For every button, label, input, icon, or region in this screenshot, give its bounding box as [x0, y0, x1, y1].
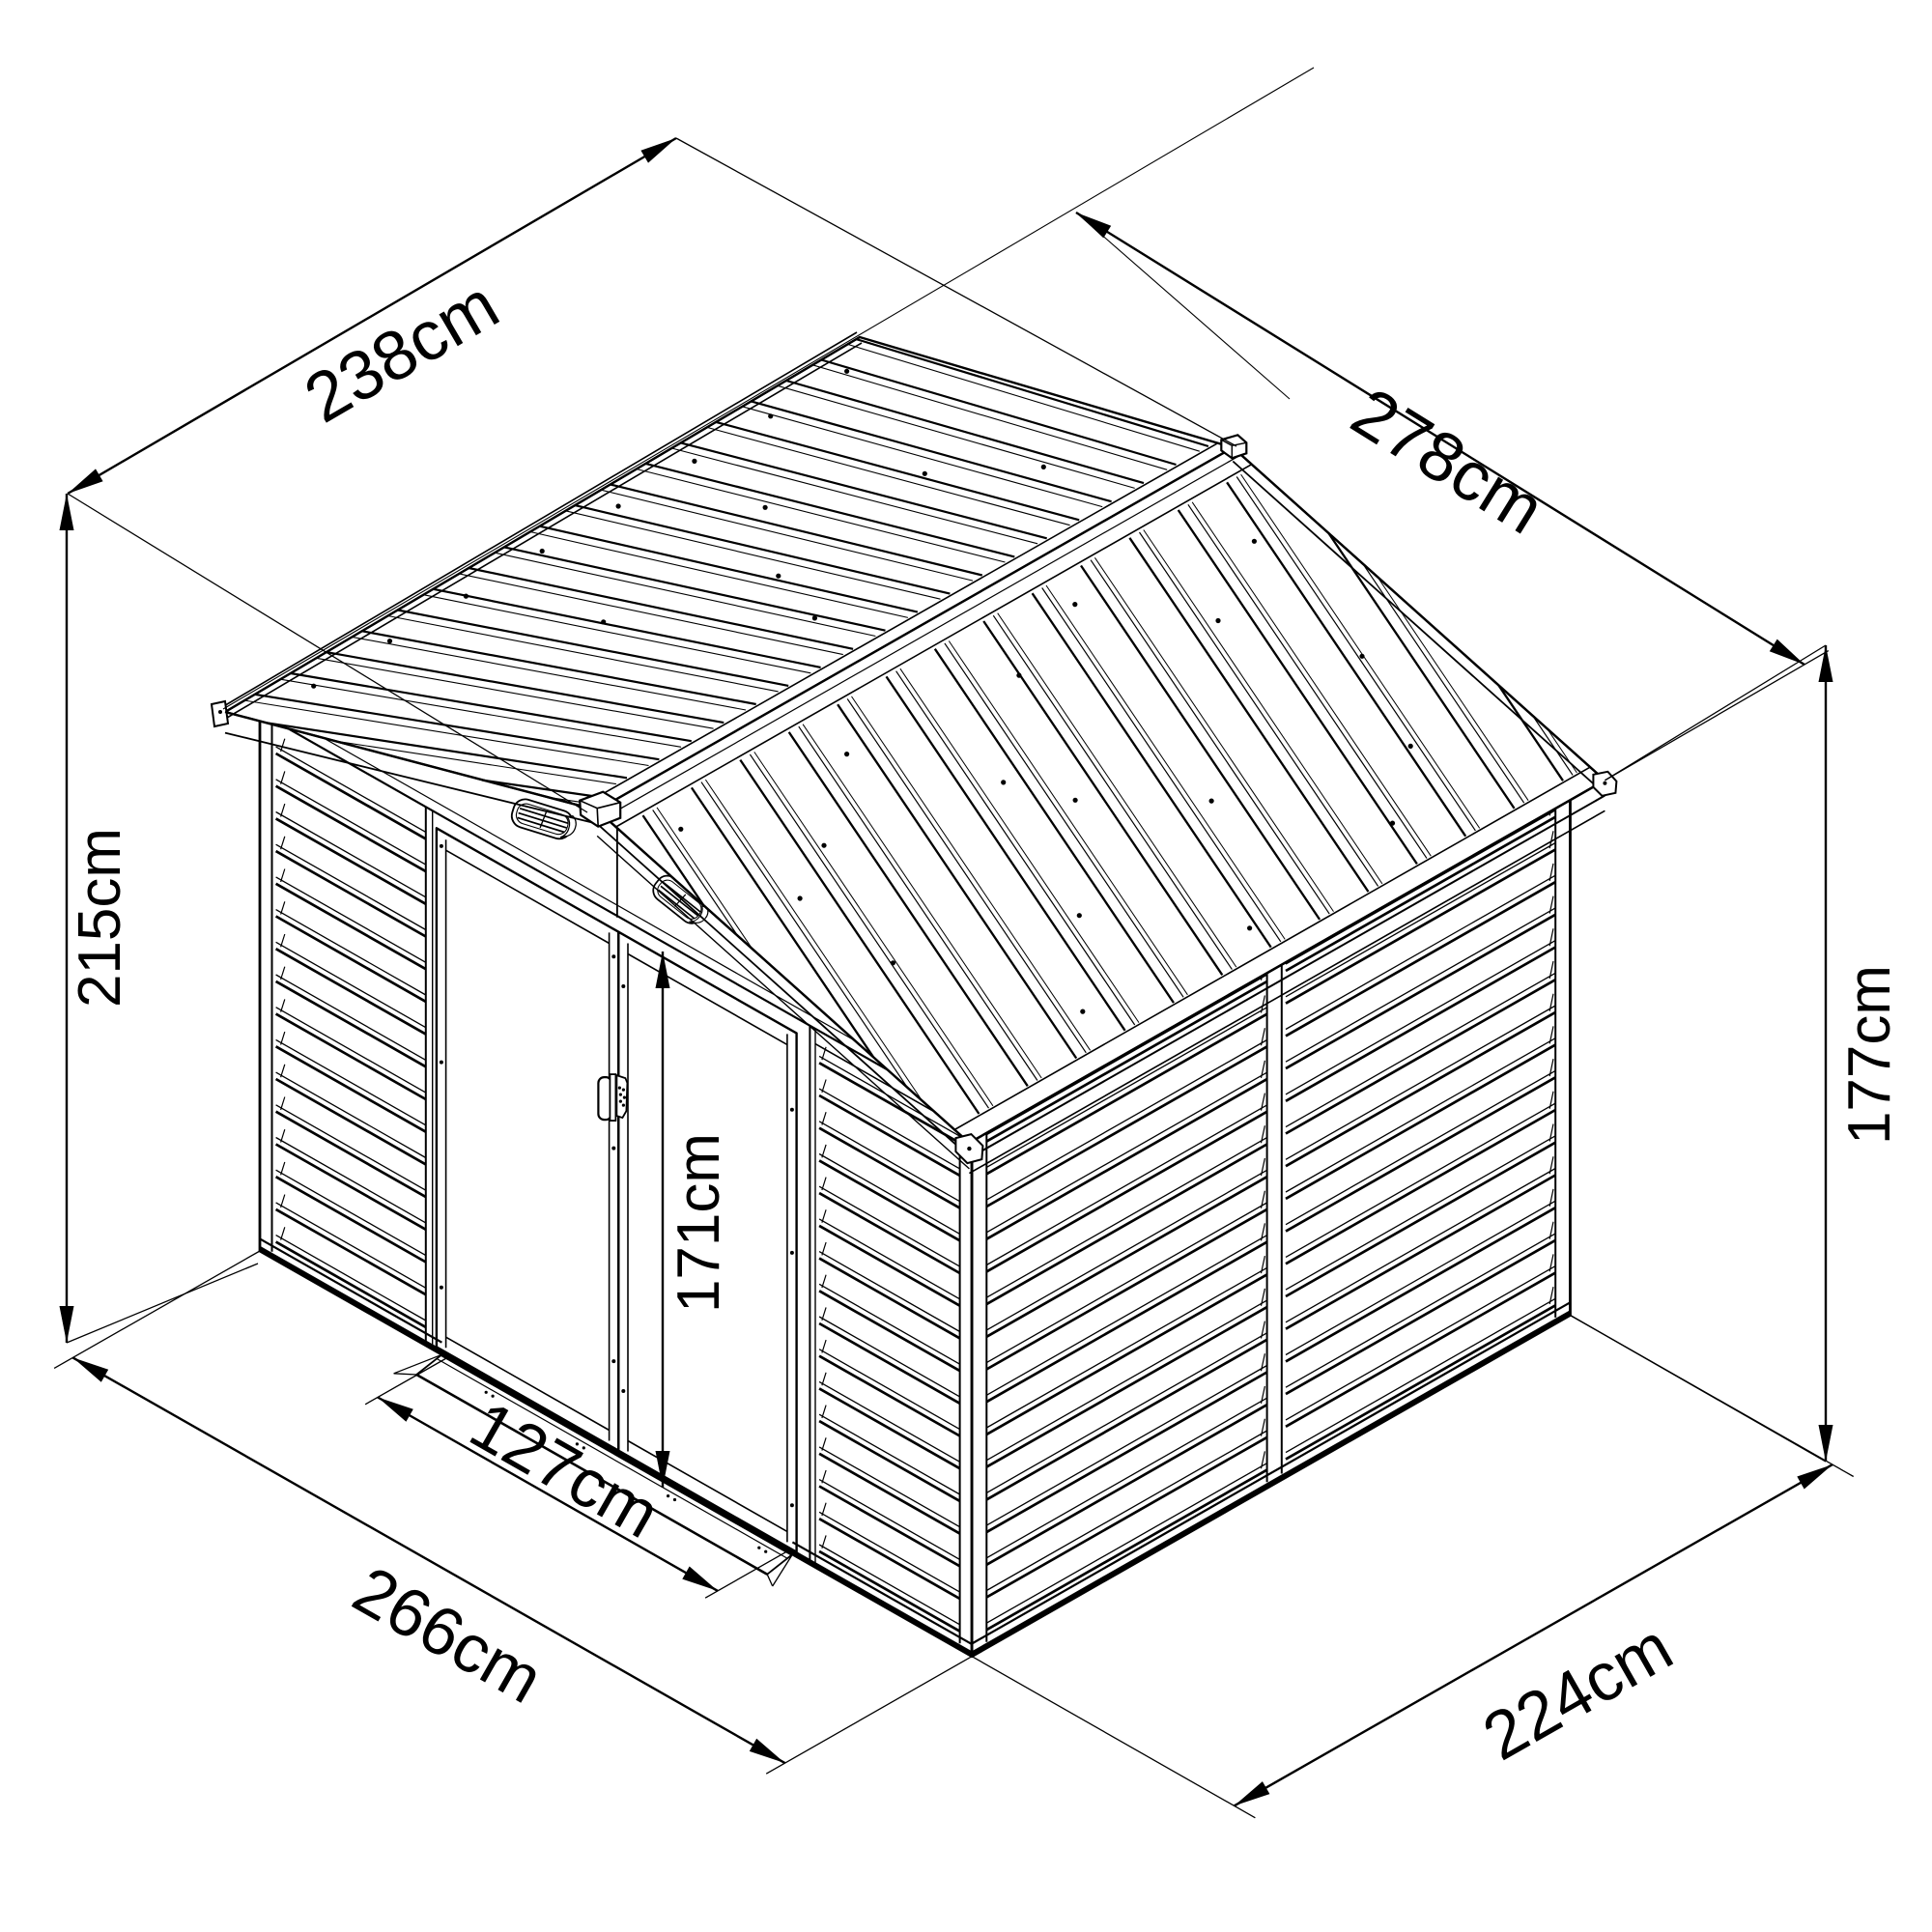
svg-text:215cm: 215cm [67, 828, 133, 1008]
svg-text:177cm: 177cm [1836, 965, 1903, 1145]
svg-text:171cm: 171cm [666, 1133, 732, 1313]
